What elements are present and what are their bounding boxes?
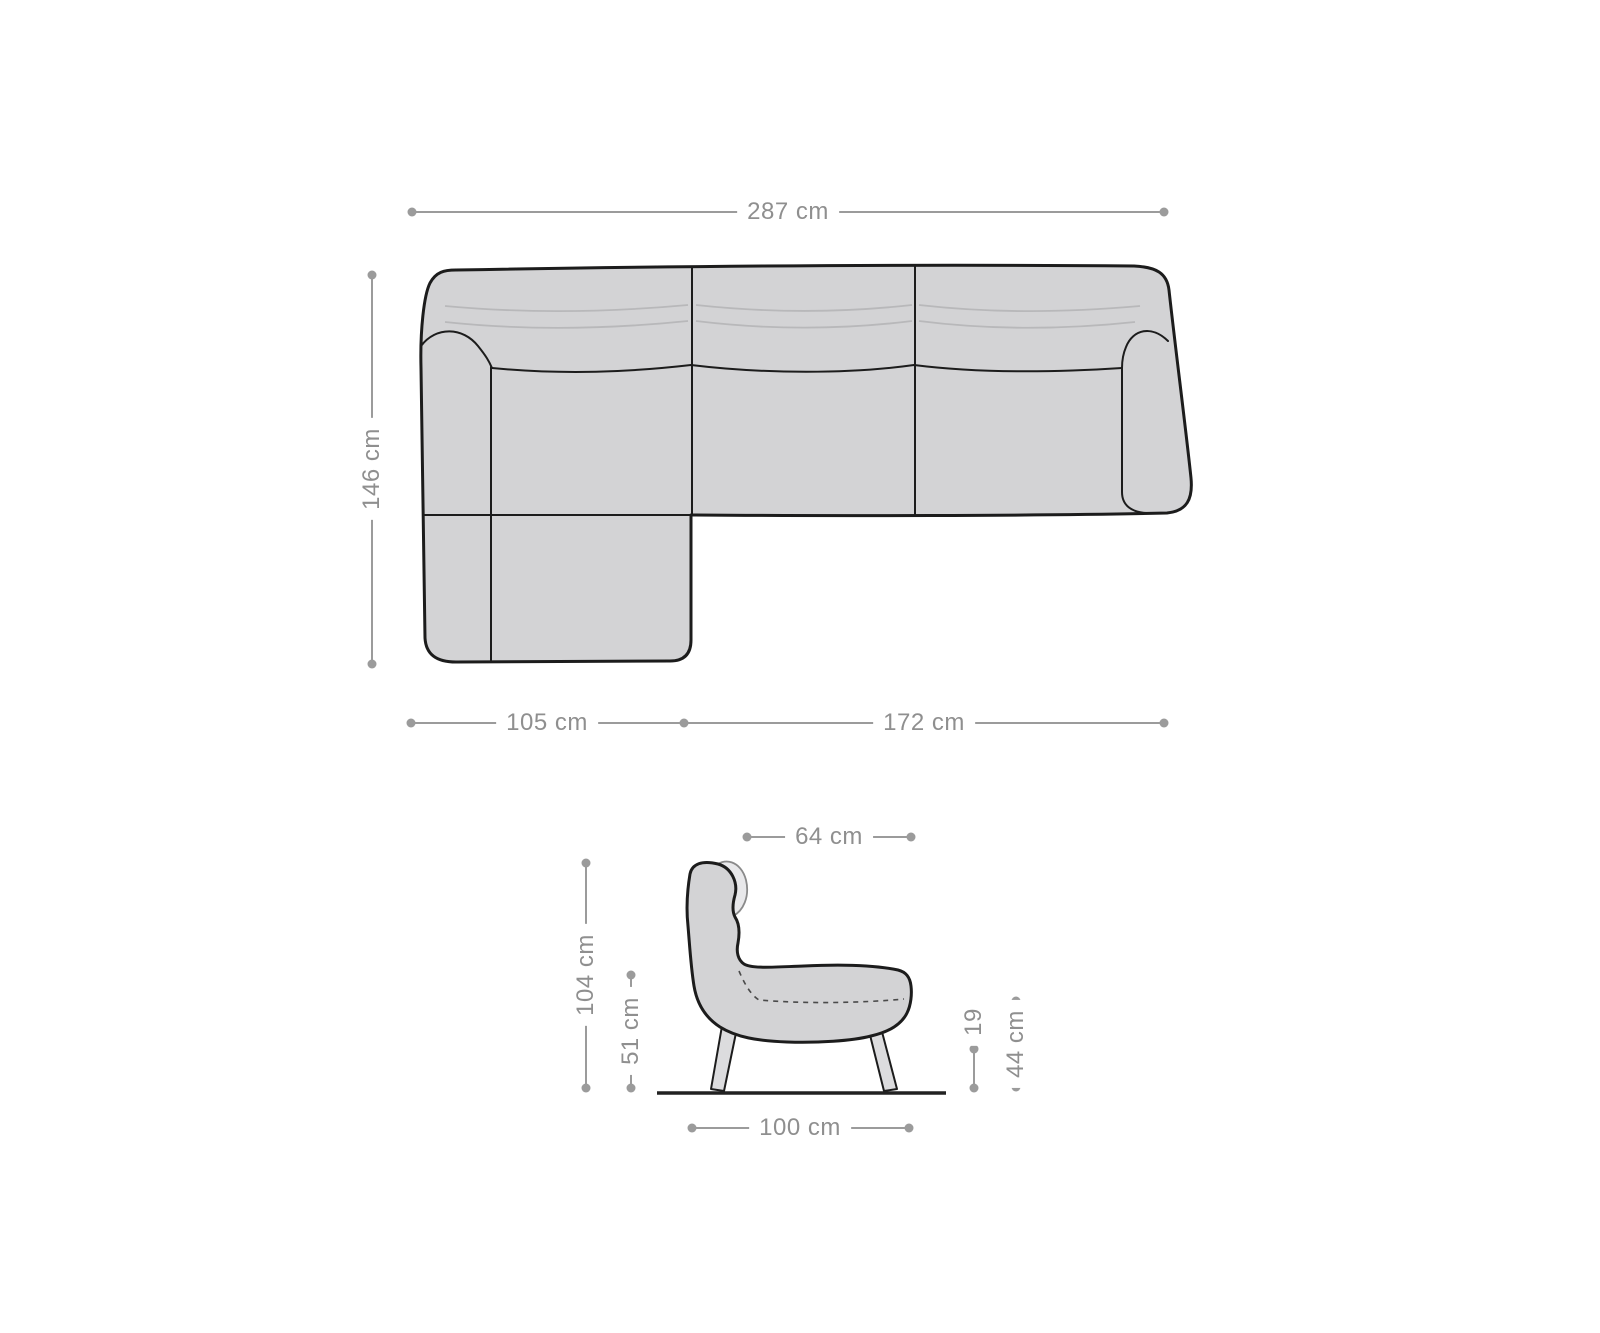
chair-seat-height-label: 44 cm: [1001, 1000, 1031, 1088]
chair-width-label: 100 cm: [749, 1113, 851, 1143]
sofa-width-label: 287 cm: [737, 197, 839, 227]
chair-depth-label: 64 cm: [785, 822, 873, 852]
chair-body: [687, 862, 911, 1042]
chair-clearance-label: 19: [959, 998, 989, 1046]
sofa-seat-width-label: 172 cm: [873, 708, 975, 738]
chair-side-view: [657, 862, 946, 1093]
dim-endpoint-dot: [970, 1084, 979, 1093]
sofa-depth-label: 146 cm: [357, 418, 387, 520]
dim-endpoint-dot: [582, 859, 591, 868]
dim-chair-clearance: [970, 1045, 979, 1093]
dim-endpoint-dot: [408, 208, 417, 217]
dim-endpoint-dot: [627, 1084, 636, 1093]
chair-height-label: 104 cm: [571, 924, 601, 1026]
dim-endpoint-dot: [1160, 719, 1169, 728]
dim-endpoint-dot: [368, 660, 377, 669]
sofa-outline: [421, 265, 1192, 662]
dim-endpoint-dot: [905, 1124, 914, 1133]
chair-back-height-label: 51 cm: [616, 987, 646, 1075]
diagram-canvas: 287 cm 146 cm 105 cm 172 cm 64 cm 104 cm…: [0, 0, 1600, 1333]
dim-endpoint-dot: [1160, 208, 1169, 217]
dim-endpoint-dot: [407, 719, 416, 728]
dim-endpoint-dot: [907, 833, 916, 842]
dim-endpoint-dot: [627, 971, 636, 980]
dim-endpoint-dot: [368, 271, 377, 280]
dim-endpoint-dot: [743, 833, 752, 842]
sofa-chaise-width-label: 105 cm: [496, 708, 598, 738]
dim-endpoint-dot: [688, 1124, 697, 1133]
sofa-top-view: [421, 265, 1192, 662]
chair-front-leg: [711, 1026, 737, 1091]
dim-endpoint-dot: [582, 1084, 591, 1093]
